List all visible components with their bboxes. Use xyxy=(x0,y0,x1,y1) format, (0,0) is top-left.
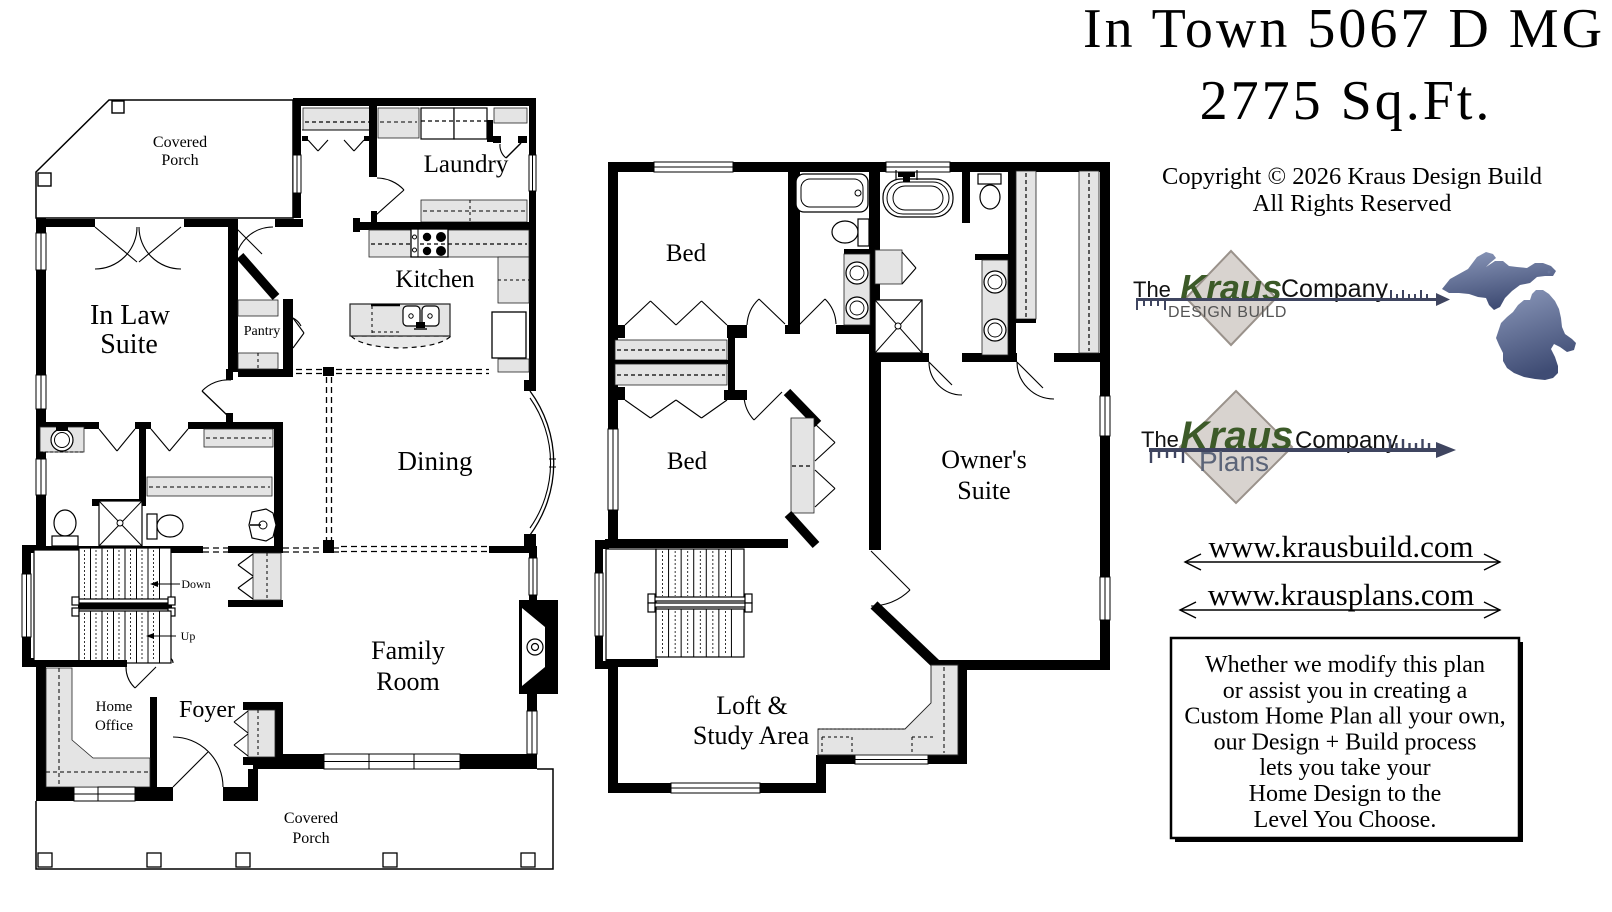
svg-text:In Law: In Law xyxy=(90,300,171,331)
svg-text:Home Design to the: Home Design to the xyxy=(1249,781,1442,807)
svg-text:Study Area: Study Area xyxy=(693,721,810,750)
svg-text:Copyright © 2026 Kraus Design: Copyright © 2026 Kraus Design Build xyxy=(1162,163,1542,190)
svg-text:Down: Down xyxy=(181,577,210,591)
svg-text:Home: Home xyxy=(96,699,133,715)
svg-text:our Design + Build process: our Design + Build process xyxy=(1214,729,1477,755)
svg-text:Custom Home Plan all your own,: Custom Home Plan all your own, xyxy=(1184,704,1505,730)
svg-text:Family: Family xyxy=(371,636,445,665)
svg-text:Porch: Porch xyxy=(161,152,198,169)
svg-text:All Rights Reserved: All Rights Reserved xyxy=(1253,190,1452,217)
svg-text:DESIGN BUILD: DESIGN BUILD xyxy=(1168,304,1287,321)
svg-text:2775 Sq.Ft.: 2775 Sq.Ft. xyxy=(1200,70,1493,132)
svg-text:Loft &: Loft & xyxy=(716,691,788,720)
svg-text:Plans: Plans xyxy=(1199,446,1269,477)
svg-text:Up: Up xyxy=(181,629,196,643)
svg-text:Dining: Dining xyxy=(397,446,472,476)
svg-text:Suite: Suite xyxy=(100,329,158,360)
svg-text:Porch: Porch xyxy=(292,830,329,847)
svg-text:Whether we modify this plan: Whether we modify this plan xyxy=(1205,652,1485,678)
svg-text:Bed: Bed xyxy=(667,448,708,475)
svg-text:Room: Room xyxy=(376,667,440,696)
svg-text:Laundry: Laundry xyxy=(424,151,509,178)
svg-text:Office: Office xyxy=(95,718,133,734)
svg-text:lets you take your: lets you take your xyxy=(1259,755,1430,781)
svg-text:or assist you in creating a: or assist you in creating a xyxy=(1223,678,1468,704)
svg-text:Bed: Bed xyxy=(666,240,707,267)
svg-text:Kitchen: Kitchen xyxy=(395,266,475,293)
svg-text:www.krausbuild.com: www.krausbuild.com xyxy=(1209,529,1474,564)
svg-text:In Town 5067 D MG: In Town 5067 D MG xyxy=(1083,0,1605,60)
svg-text:Foyer: Foyer xyxy=(179,697,235,723)
svg-text:Suite: Suite xyxy=(957,476,1010,505)
svg-text:Level You Choose.: Level You Choose. xyxy=(1254,807,1437,833)
svg-text:Covered: Covered xyxy=(153,134,207,151)
svg-text:Owner's: Owner's xyxy=(941,445,1027,474)
svg-text:Covered: Covered xyxy=(284,810,338,827)
svg-text:www.krausplans.com: www.krausplans.com xyxy=(1208,577,1475,612)
svg-text:Kraus: Kraus xyxy=(1180,267,1282,308)
svg-text:Pantry: Pantry xyxy=(244,324,281,339)
